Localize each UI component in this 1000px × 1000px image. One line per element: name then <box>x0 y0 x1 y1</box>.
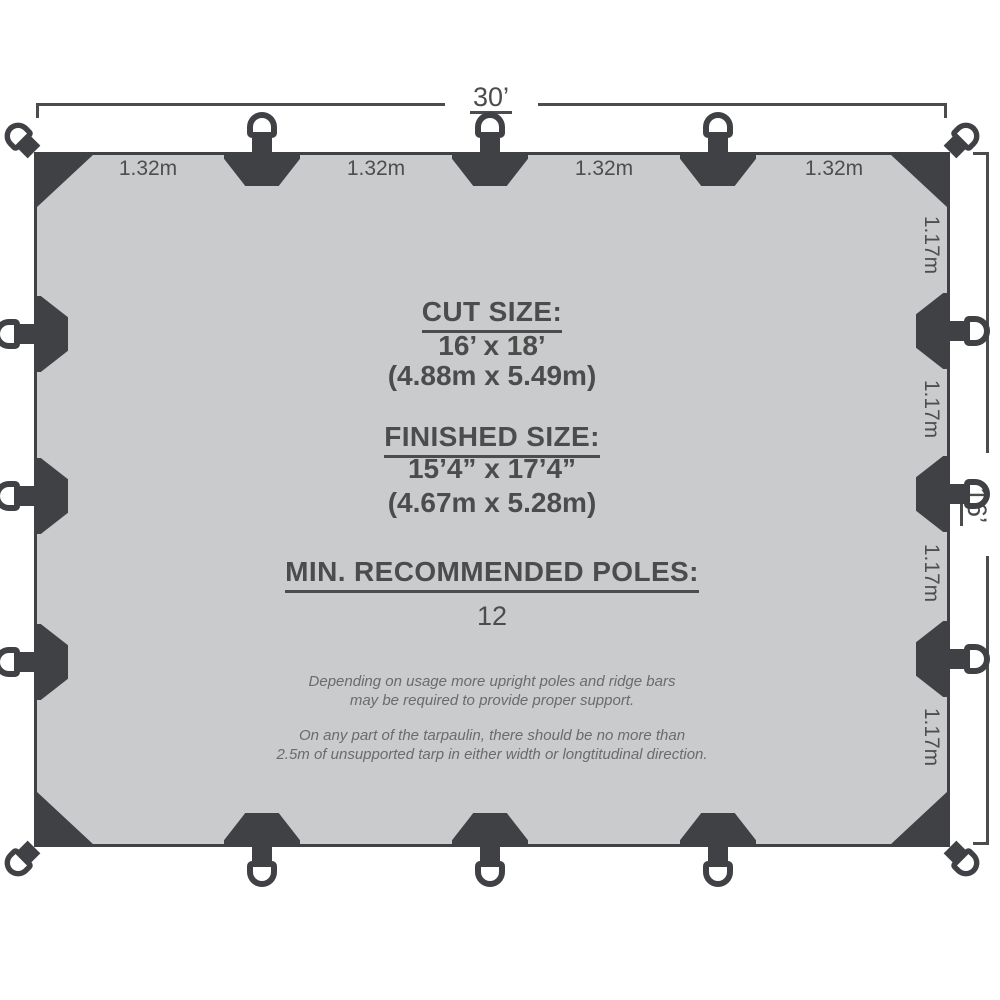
d-ring-icon <box>703 847 733 887</box>
d-ring-stub <box>17 652 34 672</box>
finished-size-metric: (4.67m x 5.28m) <box>34 487 950 519</box>
right-dimension-segment-top <box>986 152 989 453</box>
finished-size-imperial: 15’4” x 17’4” <box>34 453 950 485</box>
d-ring-icon <box>703 112 733 152</box>
right-dimension-tick-top <box>973 152 989 155</box>
d-ring-icon <box>950 316 990 346</box>
cut-size-imperial: 16’ x 18’ <box>34 330 950 362</box>
d-ring-stub <box>950 484 967 504</box>
d-ring-stub <box>950 321 967 341</box>
d-ring-icon <box>475 112 505 152</box>
segment-label-right: 1.17m <box>919 195 943 295</box>
segment-label-top: 1.32m <box>326 157 426 181</box>
d-ring-stub <box>252 847 272 864</box>
top-dimension-segment-right <box>538 103 947 106</box>
cut-size-heading: CUT SIZE: <box>34 296 950 333</box>
support-note: Depending on usage more upright poles an… <box>34 673 950 710</box>
top-dimension-tick-right <box>944 103 947 118</box>
poles-value: 12 <box>34 601 950 631</box>
d-ring-icon <box>0 481 34 511</box>
d-ring-loop <box>964 316 990 346</box>
d-ring-stub <box>252 135 272 152</box>
d-ring-loop <box>964 644 990 674</box>
poles-heading: MIN. RECOMMENDED POLES: <box>34 556 950 593</box>
d-ring-icon <box>0 647 34 677</box>
right-dimension-tick-bottom <box>973 842 989 845</box>
d-ring-stub <box>17 486 34 506</box>
tarp-spec-diagram: 30’ 16’ 1.32m 1.32m <box>0 0 1000 1000</box>
d-ring-loop <box>475 861 505 887</box>
right-dimension-segment-bottom <box>986 556 989 845</box>
segment-label-top: 1.32m <box>98 157 198 181</box>
d-ring-stub <box>480 847 500 864</box>
d-ring-icon <box>475 847 505 887</box>
d-ring-icon <box>950 644 990 674</box>
d-ring-stub <box>708 847 728 864</box>
d-ring-stub <box>708 135 728 152</box>
d-ring-stub <box>480 135 500 152</box>
segment-label-top: 1.32m <box>784 157 884 181</box>
unsupported-span-note: On any part of the tarpaulin, there shou… <box>34 727 950 764</box>
top-dimension-segment-left <box>36 103 445 106</box>
width-dimension-label: 30’ <box>441 82 541 112</box>
segment-label-top: 1.32m <box>554 157 654 181</box>
d-ring-stub <box>950 649 967 669</box>
d-ring-icon <box>950 479 990 509</box>
cut-size-metric: (4.88m x 5.49m) <box>34 360 950 392</box>
d-ring-stub <box>17 324 34 344</box>
top-dimension-tick-left <box>36 103 39 118</box>
d-ring-loop <box>247 861 277 887</box>
d-ring-icon <box>247 847 277 887</box>
d-ring-icon <box>247 112 277 152</box>
d-ring-icon <box>0 319 34 349</box>
d-ring-loop <box>964 479 990 509</box>
d-ring-loop <box>703 861 733 887</box>
